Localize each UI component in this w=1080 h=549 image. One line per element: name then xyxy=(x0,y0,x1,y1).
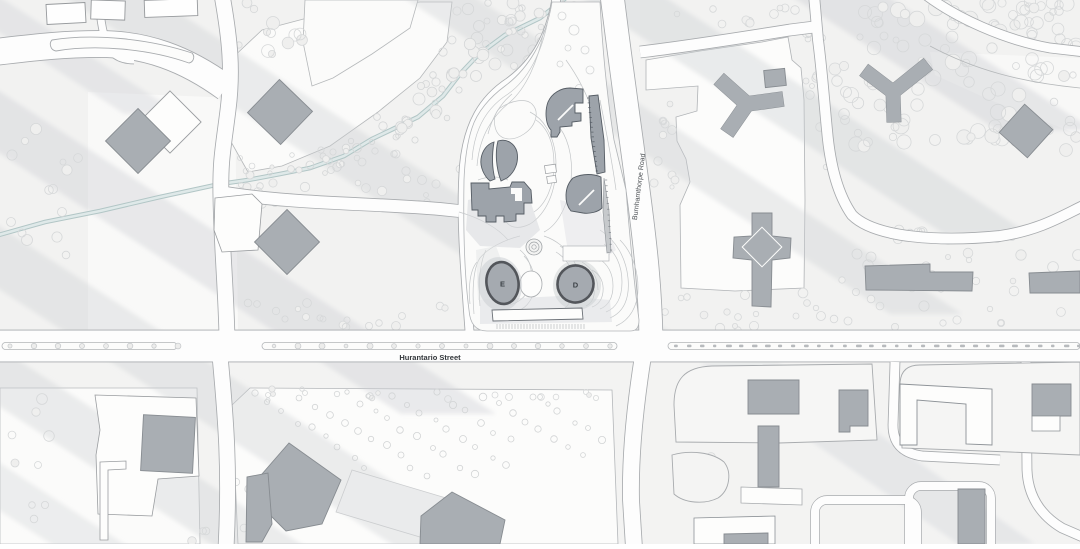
svg-text:E: E xyxy=(500,280,505,289)
svg-text:D: D xyxy=(573,281,579,290)
svg-text:Hurantario Street: Hurantario Street xyxy=(399,353,461,362)
